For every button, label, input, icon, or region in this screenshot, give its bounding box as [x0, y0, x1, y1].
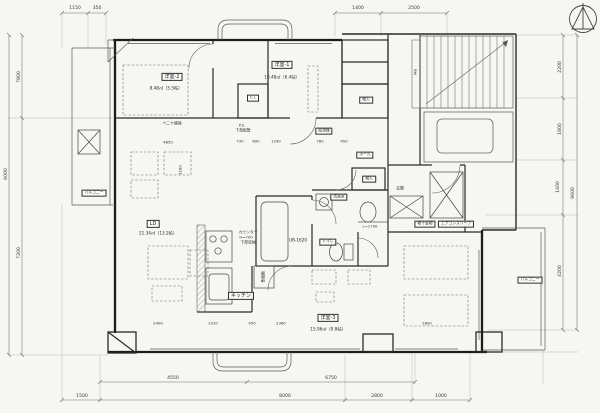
- label-balcony-right: バルコニー: [518, 277, 543, 284]
- floorplan-drawing: [0, 0, 600, 413]
- stairwell: [412, 36, 513, 108]
- dim-bottom-upper-1: 4550: [167, 376, 179, 382]
- label-cl-closet: C.L: [247, 95, 259, 102]
- dim-bottom-1: 1500: [76, 394, 88, 400]
- room-label-ld: LD: [147, 220, 160, 228]
- dim-right-3: 1400: [556, 181, 562, 193]
- dim-int-1010: 1010: [208, 322, 218, 327]
- fixtures: [78, 130, 463, 312]
- dim-int-780: 780: [316, 140, 323, 145]
- extension-lines: [8, 13, 578, 402]
- dim-left-1: 7800: [17, 71, 23, 83]
- room-label-yoshitsu3: 洋室-3: [318, 314, 339, 322]
- dim-int-3180: 3180: [179, 165, 184, 175]
- dim-int-450b: 450: [248, 322, 255, 327]
- dim-right-1: 2200: [558, 61, 564, 73]
- label-pipe: 下部配管: [235, 129, 250, 134]
- room-label-yoshitsu2: 洋室-2: [162, 73, 183, 81]
- label-closet-upper: 物入: [359, 97, 373, 104]
- dim-int-450a: 450: [340, 140, 347, 145]
- label-hanger: 物干金物: [414, 221, 435, 228]
- dim-int-690: 690: [252, 140, 259, 145]
- dim-right-4: 9600: [571, 187, 577, 199]
- dim-int-1240: 1240: [271, 140, 281, 145]
- room-label-yoshitsu1: 洋室-1: [272, 61, 293, 69]
- dim-int-2400: 2400: [153, 322, 163, 327]
- dim-right-2: 1800: [558, 123, 564, 135]
- elevator: [424, 112, 513, 162]
- dim-int-730: 730: [236, 140, 243, 145]
- dim-left-2: 6000: [4, 168, 10, 180]
- dimension-lines: [7, 11, 579, 402]
- dim-int-2800: 2800: [422, 322, 432, 327]
- dim-bottom-upper-2: 6750: [325, 376, 337, 382]
- room-area-ld: 21.34㎡（13.2帖）: [139, 230, 177, 235]
- door-arcs: [189, 44, 460, 290]
- columns: [108, 332, 502, 353]
- dim-int-2360: 2360: [276, 322, 286, 327]
- label-water-heater: 給湯器: [315, 128, 332, 135]
- label-meter-box: MB: [414, 69, 419, 75]
- label-bath: UB-1620: [289, 237, 307, 242]
- label-hall: ホール: [356, 152, 373, 159]
- label-washroom: 洗面室: [330, 194, 347, 201]
- label-counter-3: 下部収納: [240, 241, 255, 246]
- room-area-yoshitsu1: 10.48㎡（6.4帖）: [264, 74, 299, 79]
- floor-plan-sheet: 1150 350 1400 2500 4550 6750 1500 8000 2…: [0, 0, 600, 413]
- dim-int-4650: 4650: [163, 141, 173, 146]
- label-veneer: ベニヤ補強: [163, 122, 182, 127]
- label-dish-shelf: 食器棚: [262, 271, 267, 282]
- north-arrow-icon: [570, 3, 597, 33]
- label-entrance: 玄関: [396, 187, 404, 192]
- dim-left-3: 7200: [17, 247, 23, 259]
- label-toilet: トイレ: [319, 239, 336, 246]
- label-ac-sleeve: エアコンスリーブ: [438, 221, 474, 228]
- dim-bottom-2: 8000: [279, 394, 291, 400]
- label-closet-hall: 物入: [362, 176, 376, 183]
- dim-top-1: 1150: [69, 6, 81, 12]
- room-area-yoshitsu2: 8.48㎡（5.5帖）: [150, 85, 183, 90]
- dim-top-2: 350: [93, 6, 102, 12]
- label-balcony-left: バルコニー: [82, 190, 107, 197]
- dim-top-3: 1400: [352, 6, 364, 12]
- label-kitchen: キッチン: [228, 292, 254, 300]
- dim-bottom-4: 1000: [435, 394, 447, 400]
- label-linen: L=1790: [363, 225, 378, 230]
- dim-bottom-3: 2800: [371, 394, 383, 400]
- dim-right-5: 4200: [558, 265, 564, 277]
- dim-top-4: 2500: [408, 6, 420, 12]
- room-area-yoshitsu3: 15.96㎡（9.8帖）: [310, 326, 345, 331]
